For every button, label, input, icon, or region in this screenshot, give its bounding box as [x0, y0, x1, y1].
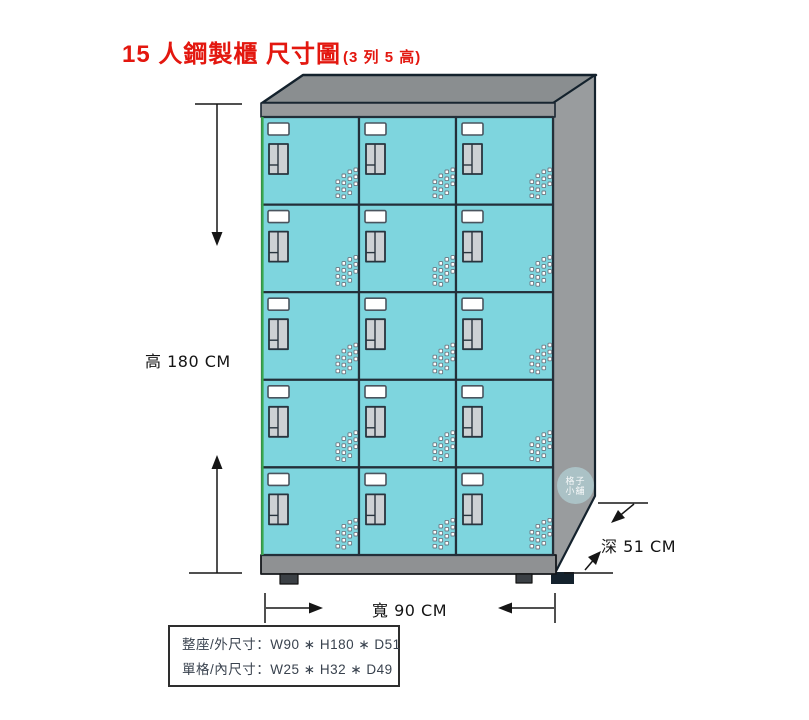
spec-line-inner: 單格/內尺寸：W25 ∗ H32 ∗ D49 — [182, 657, 398, 682]
locker-door — [456, 380, 553, 468]
locker-door — [359, 292, 456, 380]
locker-door — [456, 292, 553, 380]
spec-info-box: 整座/外尺寸：W90 ∗ H180 ∗ D51 單格/內尺寸：W25 ∗ H32… — [168, 625, 400, 687]
height-dimension — [189, 104, 242, 573]
door-name-plate — [268, 211, 289, 223]
door-handle — [269, 319, 288, 349]
door-name-plate — [462, 298, 483, 310]
watermark-line2: 小舖 — [565, 486, 585, 496]
locker-door — [359, 380, 456, 468]
door-name-plate — [462, 473, 483, 485]
door-name-plate — [365, 211, 386, 223]
locker-door — [456, 467, 553, 555]
locker-doors-grid — [262, 117, 553, 555]
door-name-plate — [365, 298, 386, 310]
door-handle — [269, 144, 288, 174]
door-handle — [269, 494, 288, 524]
cabinet-front-rail — [261, 103, 555, 117]
door-name-plate — [462, 211, 483, 223]
door-name-plate — [268, 298, 289, 310]
door-handle — [269, 232, 288, 262]
cabinet-top-face — [262, 75, 596, 103]
width-arrow-right-icon — [309, 603, 323, 614]
locker-door — [262, 117, 359, 205]
door-handle — [463, 407, 482, 437]
watermark-stamp: 格子 小舖 — [557, 467, 594, 504]
locker-door — [456, 117, 553, 205]
height-arrow-down-icon — [212, 232, 223, 246]
locker-door — [262, 292, 359, 380]
locker-door — [456, 205, 553, 293]
locker-door — [359, 467, 456, 555]
door-handle — [463, 144, 482, 174]
door-name-plate — [462, 386, 483, 398]
depth-arrow-downleft-icon — [611, 510, 625, 523]
depth-dimension-label: 深 51 CM — [601, 533, 676, 557]
diagram-canvas: 15 人鋼製櫃 尺寸圖 (3 列 5 高) — [0, 0, 809, 720]
door-name-plate — [268, 123, 289, 135]
door-name-plate — [365, 123, 386, 135]
locker-door — [359, 117, 456, 205]
door-handle — [366, 144, 385, 174]
door-name-plate — [365, 386, 386, 398]
door-handle — [366, 319, 385, 349]
door-name-plate — [268, 386, 289, 398]
width-dimension-label: 寬 90 CM — [372, 597, 447, 621]
door-handle — [366, 232, 385, 262]
cabinet-foot-left — [280, 574, 298, 584]
watermark-line1: 格子 — [565, 476, 585, 486]
door-handle — [463, 232, 482, 262]
door-handle — [366, 407, 385, 437]
spec-line-outer: 整座/外尺寸：W90 ∗ H180 ∗ D51 — [182, 632, 398, 657]
cabinet — [261, 75, 596, 584]
door-handle — [269, 407, 288, 437]
locker-door — [262, 380, 359, 468]
cabinet-base — [261, 555, 556, 574]
door-handle — [463, 494, 482, 524]
door-name-plate — [268, 473, 289, 485]
locker-door — [262, 205, 359, 293]
cabinet-foot-right — [516, 574, 532, 583]
door-name-plate — [462, 123, 483, 135]
door-handle — [463, 319, 482, 349]
door-name-plate — [365, 473, 386, 485]
door-handle — [366, 494, 385, 524]
height-dimension-label: 高 180 CM — [145, 348, 231, 372]
locker-door — [359, 205, 456, 293]
locker-door — [262, 467, 359, 555]
